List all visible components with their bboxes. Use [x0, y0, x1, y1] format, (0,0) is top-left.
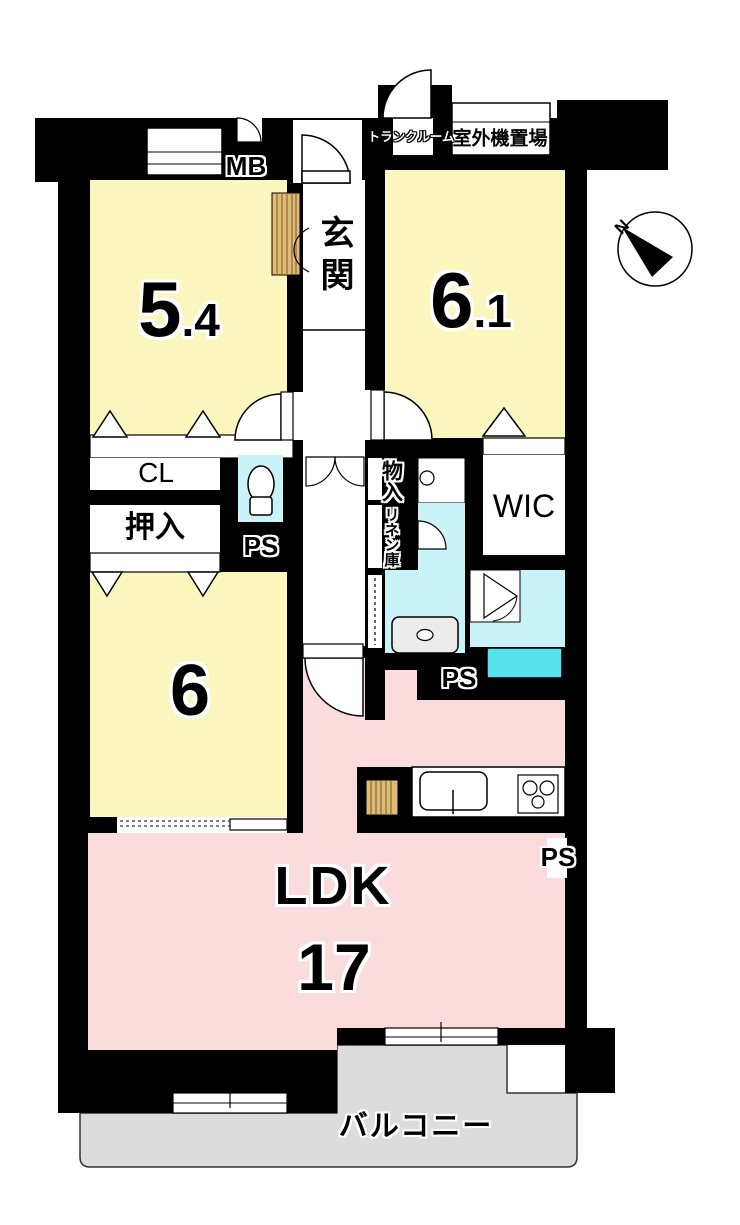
trunk-room-label: トランクルーム	[368, 131, 455, 144]
outdoor-unit-label: 室外機置場	[452, 130, 547, 149]
bedroom-nw-size: 5.4	[138, 270, 220, 348]
floor-plan-drawing	[0, 0, 740, 1225]
wic-label: WIC	[493, 490, 555, 522]
toilet-room	[238, 455, 283, 522]
hall-kitchen-wall	[365, 653, 385, 720]
bedroom-ne-size: 6.1	[430, 261, 512, 339]
floor-plan: MB トランクルーム 室外機置場 玄関 5.4 6.1 CL 押入 PS 物入 …	[0, 0, 740, 1225]
compass	[618, 212, 692, 286]
ldk-size: 17	[297, 934, 370, 1000]
storage-label: 物入	[381, 460, 402, 502]
ps-label-kitchen: PS	[541, 844, 576, 870]
linen-slot	[368, 505, 382, 568]
kitchen	[357, 767, 565, 833]
ldk-name: LDK	[275, 859, 392, 913]
meter-box-label: MB	[226, 153, 266, 179]
ldk-floor-nook	[385, 670, 417, 700]
stove	[518, 775, 558, 813]
hall-washroom-opening	[368, 575, 382, 648]
bathtub	[487, 648, 562, 678]
bedroom-sw-sliding-door	[117, 817, 287, 833]
linen-label: リネン庫	[384, 507, 399, 567]
balcony-label: バルコニー	[339, 1113, 493, 1142]
bedroom-sw-size: 6	[170, 655, 210, 727]
window-north-west	[147, 128, 222, 175]
closet-cl-label: CL	[138, 459, 174, 487]
ps-label-bath: PS	[442, 665, 477, 691]
ps-label-toilet: PS	[244, 533, 279, 559]
entrance-label: 玄関	[317, 215, 351, 299]
oshiire-label: 押入	[125, 513, 185, 543]
